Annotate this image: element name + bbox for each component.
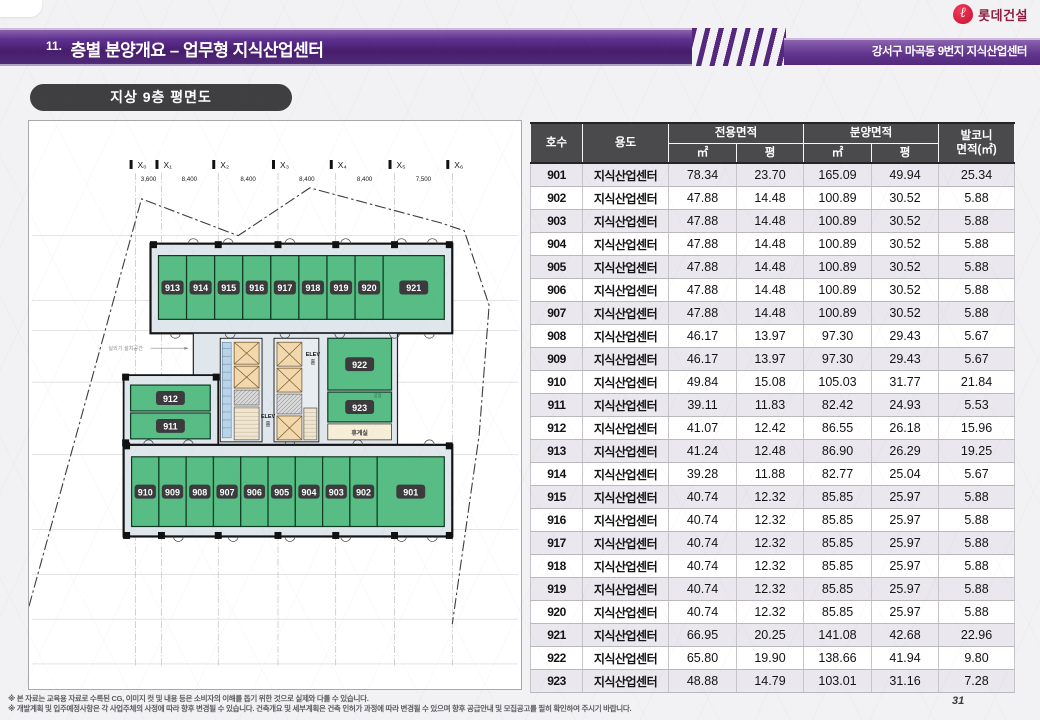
diagonal-stripes-decoration — [692, 28, 786, 66]
svg-text:912: 912 — [163, 394, 178, 404]
cell-sa_py: 30.52 — [872, 187, 939, 210]
table-row: 902지식산업센터47.8814.48100.8930.525.88 — [531, 187, 1015, 210]
cell-no: 906 — [531, 279, 583, 302]
cell-ex_py: 13.97 — [737, 348, 804, 371]
cell-ex_m2: 46.17 — [669, 348, 737, 371]
table-row: 909지식산업센터46.1713.9797.3029.435.67 — [531, 348, 1015, 371]
cell-bal: 5.88 — [939, 210, 1015, 233]
cell-sa_m2: 100.89 — [804, 233, 872, 256]
table-row: 918지식산업센터40.7412.3285.8525.975.88 — [531, 555, 1015, 578]
plan-unit: 903 — [323, 457, 350, 527]
cell-sa_py: 30.52 — [872, 233, 939, 256]
col-exclusive-area: 전용면적 — [669, 123, 804, 144]
cell-ex_m2: 65.80 — [669, 647, 737, 670]
cell-no: 902 — [531, 187, 583, 210]
cell-sa_py: 24.93 — [872, 394, 939, 417]
cell-bal: 5.67 — [939, 348, 1015, 371]
svg-text:905: 905 — [274, 487, 289, 497]
table-row: 913지식산업센터41.2412.4886.9026.2919.25 — [531, 440, 1015, 463]
floor-plan-drawing: X₀ X₁ X₂ X₃ X₄ X₅ X₆ 3,600 8,400 8,400 8… — [29, 121, 521, 689]
col-sale-pyeong: 평 — [872, 144, 939, 164]
cell-ex_py: 12.48 — [737, 440, 804, 463]
cell-sa_py: 25.97 — [872, 486, 939, 509]
corner-decoration — [0, 0, 42, 17]
col-sale-sqm: ㎡ — [804, 144, 872, 164]
cell-sa_py: 29.43 — [872, 348, 939, 371]
svg-text:916: 916 — [249, 283, 264, 293]
cell-no: 920 — [531, 601, 583, 624]
cell-bal: 5.67 — [939, 463, 1015, 486]
cell-ex_py: 12.32 — [737, 555, 804, 578]
project-subtitle: 강서구 마곡동 9번지 지식산업센터 — [784, 38, 1040, 65]
cell-sa_m2: 97.30 — [804, 325, 872, 348]
svg-text:3,600: 3,600 — [141, 176, 157, 183]
cell-sa_m2: 100.89 — [804, 279, 872, 302]
cell-bal: 21.84 — [939, 371, 1015, 394]
svg-text:911: 911 — [163, 422, 177, 432]
cell-bal: 5.88 — [939, 279, 1015, 302]
cell-sa_py: 42.68 — [872, 624, 939, 647]
svg-text:X₅: X₅ — [397, 160, 406, 170]
cell-sa_py: 29.43 — [872, 325, 939, 348]
cell-use: 지식산업센터 — [583, 578, 669, 601]
cell-bal: 5.53 — [939, 394, 1015, 417]
cell-use: 지식산업센터 — [583, 509, 669, 532]
cell-ex_m2: 39.28 — [669, 463, 737, 486]
cell-no: 901 — [531, 163, 583, 187]
cell-sa_m2: 100.89 — [804, 187, 872, 210]
cell-ex_py: 23.70 — [737, 163, 804, 187]
table-row: 915지식산업센터40.7412.3285.8525.975.88 — [531, 486, 1015, 509]
outdoor-unit-label: 실외기 설치공간 — [108, 344, 143, 352]
cell-no: 903 — [531, 210, 583, 233]
cell-use: 지식산업센터 — [583, 279, 669, 302]
factory-label: 공장 — [373, 392, 381, 398]
cell-bal: 5.88 — [939, 187, 1015, 210]
svg-text:903: 903 — [329, 487, 344, 497]
elev-label: ELEV — [306, 352, 321, 358]
svg-text:915: 915 — [221, 283, 236, 293]
cell-no: 916 — [531, 509, 583, 532]
cell-ex_m2: 40.74 — [669, 509, 737, 532]
cell-sa_m2: 165.09 — [804, 163, 872, 187]
cell-use: 지식산업센터 — [583, 555, 669, 578]
cell-sa_py: 49.94 — [872, 163, 939, 187]
plan-unit: 922 — [328, 338, 392, 390]
cell-use: 지식산업센터 — [583, 210, 669, 233]
slide-number-prefix: 11. — [46, 39, 62, 53]
page-number: 31 — [952, 695, 964, 707]
shaft-blue-strip — [222, 342, 231, 438]
cell-use: 지식산업센터 — [583, 486, 669, 509]
balcony-label-line2: 면적(㎡) — [939, 143, 1014, 157]
cell-sa_m2: 82.42 — [804, 394, 872, 417]
cell-sa_py: 30.52 — [872, 210, 939, 233]
cell-sa_m2: 85.85 — [804, 509, 872, 532]
cell-bal: 5.88 — [939, 302, 1015, 325]
cell-ex_py: 13.97 — [737, 325, 804, 348]
svg-text:904: 904 — [301, 487, 316, 497]
cell-use: 지식산업센터 — [583, 601, 669, 624]
cell-no: 923 — [531, 670, 583, 693]
cell-ex_py: 14.48 — [737, 210, 804, 233]
svg-text:902: 902 — [356, 487, 371, 497]
cell-use: 지식산업센터 — [583, 256, 669, 279]
svg-text:X₀: X₀ — [138, 160, 148, 170]
svg-text:918: 918 — [305, 283, 320, 293]
cell-sa_m2: 86.55 — [804, 417, 872, 440]
cell-sa_m2: 100.89 — [804, 210, 872, 233]
cell-use: 지식산업센터 — [583, 233, 669, 256]
cell-use: 지식산업센터 — [583, 348, 669, 371]
cell-sa_m2: 97.30 — [804, 348, 872, 371]
cell-use: 지식산업센터 — [583, 647, 669, 670]
plan-unit: 904 — [295, 457, 322, 527]
cell-bal: 9.80 — [939, 647, 1015, 670]
table-row: 904지식산업센터47.8814.48100.8930.525.88 — [531, 233, 1015, 256]
cell-no: 913 — [531, 440, 583, 463]
cell-bal: 5.88 — [939, 601, 1015, 624]
unit-area-table: 호수 용도 전용면적 분양면적 발코니 면적(㎡) ㎡ 평 ㎡ 평 901지식산… — [530, 122, 1015, 693]
cell-ex_m2: 40.74 — [669, 532, 737, 555]
plan-unit: 919 — [327, 256, 355, 320]
floor-plan-container: X₀ X₁ X₂ X₃ X₄ X₅ X₆ 3,600 8,400 8,400 8… — [28, 120, 522, 690]
cell-use: 지식산업센터 — [583, 532, 669, 555]
cell-sa_py: 26.18 — [872, 417, 939, 440]
plan-unit: 907 — [213, 457, 240, 527]
logo-text: 롯데건설 — [978, 5, 1028, 24]
cell-ex_m2: 46.17 — [669, 325, 737, 348]
rest-room-label: 휴게실 — [351, 429, 368, 437]
cell-ex_m2: 40.74 — [669, 578, 737, 601]
svg-text:922: 922 — [352, 360, 367, 370]
cell-use: 지식산업센터 — [583, 624, 669, 647]
table-row: 908지식산업센터46.1713.9797.3029.435.67 — [531, 325, 1015, 348]
cell-bal: 5.88 — [939, 233, 1015, 256]
stairs — [304, 408, 317, 440]
table-row: 910지식산업센터49.8415.08105.0331.7721.84 — [531, 371, 1015, 394]
unit-table-body: 901지식산업센터78.3423.70165.0949.9425.34902지식… — [531, 163, 1015, 693]
cell-no: 908 — [531, 325, 583, 348]
cell-sa_py: 41.94 — [872, 647, 939, 670]
cell-ex_m2: 40.74 — [669, 486, 737, 509]
table-row: 919지식산업센터40.7412.3285.8525.975.88 — [531, 578, 1015, 601]
cell-sa_py: 25.97 — [872, 601, 939, 624]
cell-sa_m2: 85.85 — [804, 601, 872, 624]
cell-sa_py: 25.04 — [872, 463, 939, 486]
plan-unit: 905 — [268, 457, 295, 527]
svg-text:914: 914 — [193, 283, 208, 293]
svg-text:909: 909 — [165, 487, 180, 497]
table-row: 903지식산업센터47.8814.48100.8930.525.88 — [531, 210, 1015, 233]
floor-plan-badge: 지상 9층 평면도 — [30, 84, 292, 111]
cell-bal: 5.88 — [939, 555, 1015, 578]
cell-sa_py: 31.77 — [872, 371, 939, 394]
top-strip — [0, 0, 1040, 28]
cell-no: 919 — [531, 578, 583, 601]
svg-text:919: 919 — [334, 283, 349, 293]
cell-ex_py: 12.32 — [737, 509, 804, 532]
svg-text:923: 923 — [352, 403, 367, 413]
cell-use: 지식산업센터 — [583, 187, 669, 210]
plan-unit: 923 — [328, 392, 392, 422]
cell-bal: 22.96 — [939, 624, 1015, 647]
cell-ex_py: 14.48 — [737, 187, 804, 210]
table-row: 923지식산업센터48.8814.79103.0131.167.28 — [531, 670, 1015, 693]
cell-sa_m2: 85.85 — [804, 486, 872, 509]
col-balcony-area: 발코니 면적(㎡) — [939, 123, 1015, 163]
cell-ex_m2: 49.84 — [669, 371, 737, 394]
cell-no: 904 — [531, 233, 583, 256]
cell-use: 지식산업센터 — [583, 371, 669, 394]
table-row: 901지식산업센터78.3423.70165.0949.9425.34 — [531, 163, 1015, 187]
cell-ex_m2: 47.88 — [669, 302, 737, 325]
cell-no: 914 — [531, 463, 583, 486]
cell-ex_m2: 48.88 — [669, 670, 737, 693]
cell-use: 지식산업센터 — [583, 163, 669, 187]
table-row: 920지식산업센터40.7412.3285.8525.975.88 — [531, 601, 1015, 624]
plan-unit: 908 — [186, 457, 213, 527]
plan-unit: 920 — [355, 256, 383, 320]
elev-label-2: ELEV — [261, 414, 276, 420]
svg-text:8,400: 8,400 — [182, 176, 198, 183]
cell-sa_py: 25.97 — [872, 578, 939, 601]
cell-ex_py: 15.08 — [737, 371, 804, 394]
svg-text:917: 917 — [277, 283, 292, 293]
title-bar: 11. 층별 분양개요 – 업무형 지식산업센터 — [0, 28, 700, 66]
cell-sa_py: 25.97 — [872, 555, 939, 578]
cell-ex_py: 11.88 — [737, 463, 804, 486]
cell-ex_py: 20.25 — [737, 624, 804, 647]
cell-bal: 5.88 — [939, 532, 1015, 555]
footnote-2: ※ 개발계획 및 입주예정사항은 각 사업주체의 사정에 따라 향후 변경될 수… — [8, 703, 631, 714]
cell-no: 910 — [531, 371, 583, 394]
svg-text:906: 906 — [247, 487, 262, 497]
elev-hall-label: 홀 — [310, 358, 315, 366]
cell-sa_py: 26.29 — [872, 440, 939, 463]
plan-unit: 912 — [131, 385, 211, 411]
axis-labels: X₀ X₁ X₂ X₃ X₄ X₅ X₆ 3,600 8,400 8,400 8… — [130, 160, 464, 183]
plan-unit: 917 — [271, 256, 299, 320]
svg-text:901: 901 — [403, 487, 418, 497]
table-row: 917지식산업센터40.7412.3285.8525.975.88 — [531, 532, 1015, 555]
svg-text:908: 908 — [192, 487, 207, 497]
cell-sa_m2: 103.01 — [804, 670, 872, 693]
cell-ex_m2: 66.95 — [669, 624, 737, 647]
cell-sa_py: 25.97 — [872, 532, 939, 555]
col-sale-area: 분양면적 — [804, 123, 939, 144]
table-row: 922지식산업센터65.8019.90138.6641.949.80 — [531, 647, 1015, 670]
slide: ℓ 롯데건설 11. 층별 분양개요 – 업무형 지식산업센터 강서구 마곡동 … — [0, 0, 1040, 720]
svg-text:8,400: 8,400 — [299, 176, 315, 183]
cell-ex_m2: 47.88 — [669, 187, 737, 210]
plan-unit: 902 — [350, 457, 377, 527]
cell-ex_m2: 41.24 — [669, 440, 737, 463]
cell-bal: 25.34 — [939, 163, 1015, 187]
cell-use: 지식산업센터 — [583, 302, 669, 325]
cell-no: 905 — [531, 256, 583, 279]
cell-no: 915 — [531, 486, 583, 509]
cell-bal: 5.88 — [939, 256, 1015, 279]
cell-no: 922 — [531, 647, 583, 670]
table-header: 호수 용도 전용면적 분양면적 발코니 면적(㎡) ㎡ 평 ㎡ 평 — [531, 123, 1015, 163]
cell-sa_m2: 138.66 — [804, 647, 872, 670]
svg-text:921: 921 — [406, 283, 421, 293]
plan-unit: 910 — [132, 457, 159, 527]
balcony-label-line1: 발코니 — [939, 129, 1014, 143]
cell-no: 918 — [531, 555, 583, 578]
cell-no: 921 — [531, 624, 583, 647]
cell-sa_py: 31.16 — [872, 670, 939, 693]
cell-bal: 5.88 — [939, 486, 1015, 509]
plan-unit: 906 — [241, 457, 268, 527]
cell-ex_py: 19.90 — [737, 647, 804, 670]
stairs — [234, 407, 259, 440]
cell-bal: 15.96 — [939, 417, 1015, 440]
plan-unit: 921 — [383, 256, 444, 320]
cell-sa_py: 30.52 — [872, 256, 939, 279]
cell-sa_m2: 141.08 — [804, 624, 872, 647]
cell-bal: 7.28 — [939, 670, 1015, 693]
plan-unit: 918 — [299, 256, 327, 320]
cell-ex_m2: 39.11 — [669, 394, 737, 417]
cell-no: 907 — [531, 302, 583, 325]
table-row: 907지식산업센터47.8814.48100.8930.525.88 — [531, 302, 1015, 325]
svg-text:X₄: X₄ — [338, 160, 348, 170]
table-row: 912지식산업센터41.0712.4286.5526.1815.96 — [531, 417, 1015, 440]
cell-ex_py: 14.48 — [737, 279, 804, 302]
cell-use: 지식산업센터 — [583, 670, 669, 693]
cell-ex_py: 11.83 — [737, 394, 804, 417]
cell-sa_m2: 100.89 — [804, 256, 872, 279]
svg-text:X₂: X₂ — [220, 160, 229, 170]
cell-use: 지식산업센터 — [583, 463, 669, 486]
svg-text:X₃: X₃ — [280, 160, 289, 170]
cell-ex_py: 14.48 — [737, 233, 804, 256]
cell-ex_py: 12.32 — [737, 601, 804, 624]
cell-sa_m2: 85.85 — [804, 532, 872, 555]
elev-hall-label-2: 홀 — [266, 420, 271, 428]
cell-ex_m2: 47.88 — [669, 210, 737, 233]
cell-ex_m2: 40.74 — [669, 555, 737, 578]
cell-bal: 5.88 — [939, 578, 1015, 601]
plan-unit: 915 — [215, 256, 243, 320]
cell-use: 지식산업센터 — [583, 417, 669, 440]
svg-text:X₆: X₆ — [454, 160, 463, 170]
svg-text:910: 910 — [138, 487, 153, 497]
svg-text:8,400: 8,400 — [240, 176, 256, 183]
plan-unit: 911 — [131, 413, 211, 439]
plan-unit: 914 — [187, 256, 215, 320]
cell-bal: 5.88 — [939, 509, 1015, 532]
cell-ex_m2: 47.88 — [669, 256, 737, 279]
plan-unit: 916 — [243, 256, 271, 320]
cell-no: 912 — [531, 417, 583, 440]
cell-sa_py: 25.97 — [872, 509, 939, 532]
cell-no: 917 — [531, 532, 583, 555]
cell-use: 지식산업센터 — [583, 440, 669, 463]
plan-unit: 913 — [158, 256, 186, 320]
cell-ex_py: 12.32 — [737, 578, 804, 601]
cell-sa_m2: 82.77 — [804, 463, 872, 486]
company-logo: ℓ 롯데건설 — [953, 4, 1028, 24]
cell-sa_m2: 86.90 — [804, 440, 872, 463]
cell-no: 911 — [531, 394, 583, 417]
table-row: 914지식산업센터39.2811.8882.7725.045.67 — [531, 463, 1015, 486]
cell-ex_py: 12.32 — [737, 532, 804, 555]
cell-use: 지식산업센터 — [583, 325, 669, 348]
cell-sa_m2: 105.03 — [804, 371, 872, 394]
cell-ex_py: 12.42 — [737, 417, 804, 440]
cell-use: 지식산업센터 — [583, 394, 669, 417]
table-row: 905지식산업센터47.8814.48100.8930.525.88 — [531, 256, 1015, 279]
page-title: 층별 분양개요 – 업무형 지식산업센터 — [70, 41, 323, 60]
cell-sa_py: 30.52 — [872, 302, 939, 325]
cell-ex_py: 12.32 — [737, 486, 804, 509]
cell-sa_m2: 100.89 — [804, 302, 872, 325]
cell-ex_m2: 41.07 — [669, 417, 737, 440]
svg-text:907: 907 — [220, 487, 235, 497]
plan-unit: 901 — [377, 457, 444, 527]
cell-ex_py: 14.79 — [737, 670, 804, 693]
table-row: 906지식산업센터47.8814.48100.8930.525.88 — [531, 279, 1015, 302]
svg-text:8,400: 8,400 — [357, 176, 373, 183]
plan-unit: 909 — [159, 457, 186, 527]
table-row: 911지식산업센터39.1111.8382.4224.935.53 — [531, 394, 1015, 417]
cell-sa_m2: 85.85 — [804, 578, 872, 601]
col-exclusive-sqm: ㎡ — [669, 144, 737, 164]
cell-ex_m2: 40.74 — [669, 601, 737, 624]
cell-ex_m2: 47.88 — [669, 233, 737, 256]
table-row: 921지식산업센터66.9520.25141.0842.6822.96 — [531, 624, 1015, 647]
cell-ex_m2: 78.34 — [669, 163, 737, 187]
col-exclusive-pyeong: 평 — [737, 144, 804, 164]
cell-sa_py: 30.52 — [872, 279, 939, 302]
svg-text:920: 920 — [362, 283, 377, 293]
cell-ex_py: 14.48 — [737, 302, 804, 325]
svg-text:7,500: 7,500 — [416, 176, 432, 183]
col-use: 용도 — [583, 123, 669, 163]
table-row: 916지식산업센터40.7412.3285.8525.975.88 — [531, 509, 1015, 532]
cell-ex_m2: 47.88 — [669, 279, 737, 302]
svg-text:X₁: X₁ — [163, 160, 172, 170]
cell-no: 909 — [531, 348, 583, 371]
col-unit-no: 호수 — [531, 123, 583, 163]
cell-ex_py: 14.48 — [737, 256, 804, 279]
cell-sa_m2: 85.85 — [804, 555, 872, 578]
svg-text:913: 913 — [165, 283, 180, 293]
cell-bal: 19.25 — [939, 440, 1015, 463]
cell-bal: 5.67 — [939, 325, 1015, 348]
lotte-logo-icon: ℓ — [953, 4, 973, 24]
